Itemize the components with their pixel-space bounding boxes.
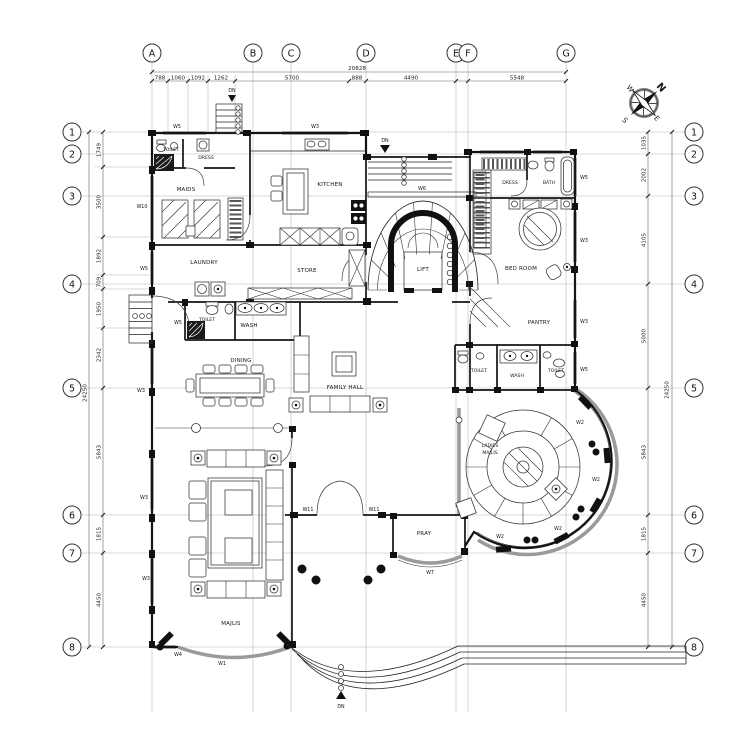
dim-left-7: 1815 <box>97 526 103 541</box>
dim-top-2: 1092 <box>191 76 205 82</box>
tag-w3-left-1: W3 <box>137 388 145 394</box>
label-dress-master: DRESS <box>502 180 518 186</box>
label-maids: MAIDS <box>177 187 196 193</box>
label-majlis: MAJLIS <box>221 621 241 627</box>
label-bath: BATH <box>543 180 555 186</box>
store-furniture <box>248 250 365 299</box>
dim-right-total: 24250 <box>665 381 671 399</box>
row-left-6: 6 <box>69 511 75 522</box>
dim-top-6: 4490 <box>404 76 419 82</box>
dim-top-total: 20828 <box>348 66 366 72</box>
row-bubbles-right: 1 2 3 4 5 6 7 8 <box>685 123 703 656</box>
label-ladies-majlis-2: MAJLIS <box>482 450 497 456</box>
label-wash-left: WASH <box>240 323 257 329</box>
column-bubbles: A B C D E F G <box>143 44 575 62</box>
label-ladies-majlis-1: LADIES <box>482 443 499 449</box>
label-pantry: PANTRY <box>528 320 551 326</box>
dining-furniture <box>186 365 274 406</box>
left-porch-steps <box>129 295 152 343</box>
tag-w5-left: W5 <box>140 266 148 272</box>
tag-w7: W7 <box>426 570 434 576</box>
dim-right-3: 5000 <box>642 328 648 343</box>
compass-east: E <box>652 114 661 123</box>
label-family-hall: FAMILY HALL <box>327 385 364 391</box>
row-right-3: 3 <box>691 192 697 203</box>
dn-label-top-center: DN <box>381 138 389 144</box>
tag-w11-1: W11 <box>303 507 314 513</box>
row-left-2: 2 <box>69 150 75 161</box>
label-wash-right: WASH <box>510 373 524 379</box>
dim-left-5: 2342 <box>97 348 103 362</box>
row-right-6: 6 <box>691 511 697 522</box>
tag-w11-2: W11 <box>369 507 380 513</box>
dim-right-5: 1815 <box>642 526 648 541</box>
label-store: STORE <box>297 268 317 274</box>
col-C: C <box>288 49 295 60</box>
tag-w2-1: W2 <box>576 420 584 426</box>
label-laundry: LAUNDRY <box>190 260 218 266</box>
col-F: F <box>465 49 470 60</box>
label-toilet-left: TOILET <box>198 317 215 323</box>
maids-toilet-fixtures <box>154 139 209 171</box>
dim-right-4: 5843 <box>642 444 648 459</box>
tag-w5-toilet: W5 <box>174 320 182 326</box>
row-left-8: 8 <box>69 643 75 654</box>
tag-w2-4: W2 <box>496 534 504 540</box>
tag-w6: W6 <box>418 186 426 192</box>
tag-w1: W1 <box>218 661 226 667</box>
label-dining: DINING <box>230 358 251 364</box>
dn-label-bottom: DN <box>337 704 345 710</box>
dim-top-1: 1060 <box>171 76 186 82</box>
label-toilet-r1: TOILET <box>470 368 487 374</box>
family-hall-furniture <box>289 336 387 412</box>
row-right-7: 7 <box>691 549 697 560</box>
col-D: D <box>362 49 369 60</box>
ladies-majlis-furniture <box>456 410 580 524</box>
dim-right-6: 4450 <box>642 592 648 607</box>
label-dress-maids: DRESS <box>198 155 214 161</box>
label-kitchen: KITCHEN <box>317 182 342 188</box>
row-right-2: 2 <box>691 150 697 161</box>
tag-w3-top: W3 <box>311 124 319 130</box>
tag-w4: W4 <box>174 652 182 658</box>
dim-top-3: 1262 <box>214 76 228 82</box>
tag-w3-left-2: W3 <box>140 495 148 501</box>
dim-left-total: 24250 <box>83 384 89 402</box>
row-left-1: 1 <box>69 128 75 139</box>
majlis-furniture <box>189 450 283 598</box>
tag-w5-right-1: W5 <box>580 175 588 181</box>
kitchen-furniture <box>250 139 366 245</box>
furniture <box>154 139 580 598</box>
row-right-8: 8 <box>691 643 697 654</box>
lift-shaft <box>391 213 455 293</box>
row-left-4: 4 <box>69 280 75 291</box>
tag-w3-right-1: W3 <box>580 238 588 244</box>
label-toilet-r2: TOILET <box>547 368 564 374</box>
row-bubbles-left: 1 2 3 4 5 6 7 8 <box>63 123 81 656</box>
col-E: E <box>453 49 459 60</box>
label-pray: PRAY <box>417 531 432 537</box>
dim-top-7: 5548 <box>510 76 525 82</box>
col-A: A <box>149 49 156 60</box>
dim-left-2: 1892 <box>97 249 103 263</box>
top-steps: DN <box>368 138 452 185</box>
tag-w3-left-3: W3 <box>142 576 150 582</box>
dim-left-6: 5843 <box>97 444 103 459</box>
tag-w2-2: W2 <box>592 477 600 483</box>
col-B: B <box>250 49 257 60</box>
dim-left-0: 1749 <box>97 142 103 157</box>
floor-plan-drawing: 20828 788 1060 1092 1262 5700 888 4490 5… <box>0 0 750 750</box>
maids-furniture <box>162 198 243 240</box>
label-toilet-maids: TOILET <box>162 147 179 153</box>
row-right-1: 1 <box>691 128 697 139</box>
tag-w5-top: W5 <box>173 124 181 130</box>
tag-w10-left: W10 <box>137 204 148 210</box>
tag-w2-3: W2 <box>554 526 562 532</box>
tag-w5-right-2: W5 <box>580 367 588 373</box>
row-right-4: 4 <box>691 280 697 291</box>
dim-top-0: 788 <box>155 76 166 82</box>
pantry-furniture <box>470 287 510 327</box>
dim-right-1: 2002 <box>642 168 648 182</box>
row-left-5: 5 <box>69 384 75 395</box>
label-bedroom: BED ROOM <box>505 266 537 272</box>
compass-rose: N S W E <box>606 67 680 140</box>
col-G: G <box>562 49 569 60</box>
dimension-labels-right: 1035 2002 4105 5000 5843 1815 4450 24250 <box>642 135 671 607</box>
topleft-stair: DN <box>216 88 242 134</box>
dim-left-3: 709 <box>97 276 103 287</box>
dim-top-5: 888 <box>352 76 363 82</box>
label-lift: LIFT <box>417 267 429 273</box>
dimension-labels-left: 1749 3500 1892 709 1950 2342 5843 1815 4… <box>83 142 103 607</box>
entrance-steps: DN <box>287 644 686 710</box>
dim-left-8: 4450 <box>97 592 103 607</box>
row-right-5: 5 <box>691 384 697 395</box>
dim-top-4: 5700 <box>285 76 300 82</box>
tag-w3-right-2: W3 <box>580 319 588 325</box>
dim-right-0: 1035 <box>642 135 648 150</box>
dn-label-top-left: DN <box>228 88 236 94</box>
dim-right-2: 4105 <box>642 232 648 247</box>
compass-south: S <box>620 116 629 125</box>
row-left-3: 3 <box>69 192 75 203</box>
row-left-7: 7 <box>69 549 75 560</box>
dim-left-1: 3500 <box>97 194 103 209</box>
wash-left-fixtures <box>236 302 286 315</box>
dim-left-4: 1950 <box>97 301 103 316</box>
